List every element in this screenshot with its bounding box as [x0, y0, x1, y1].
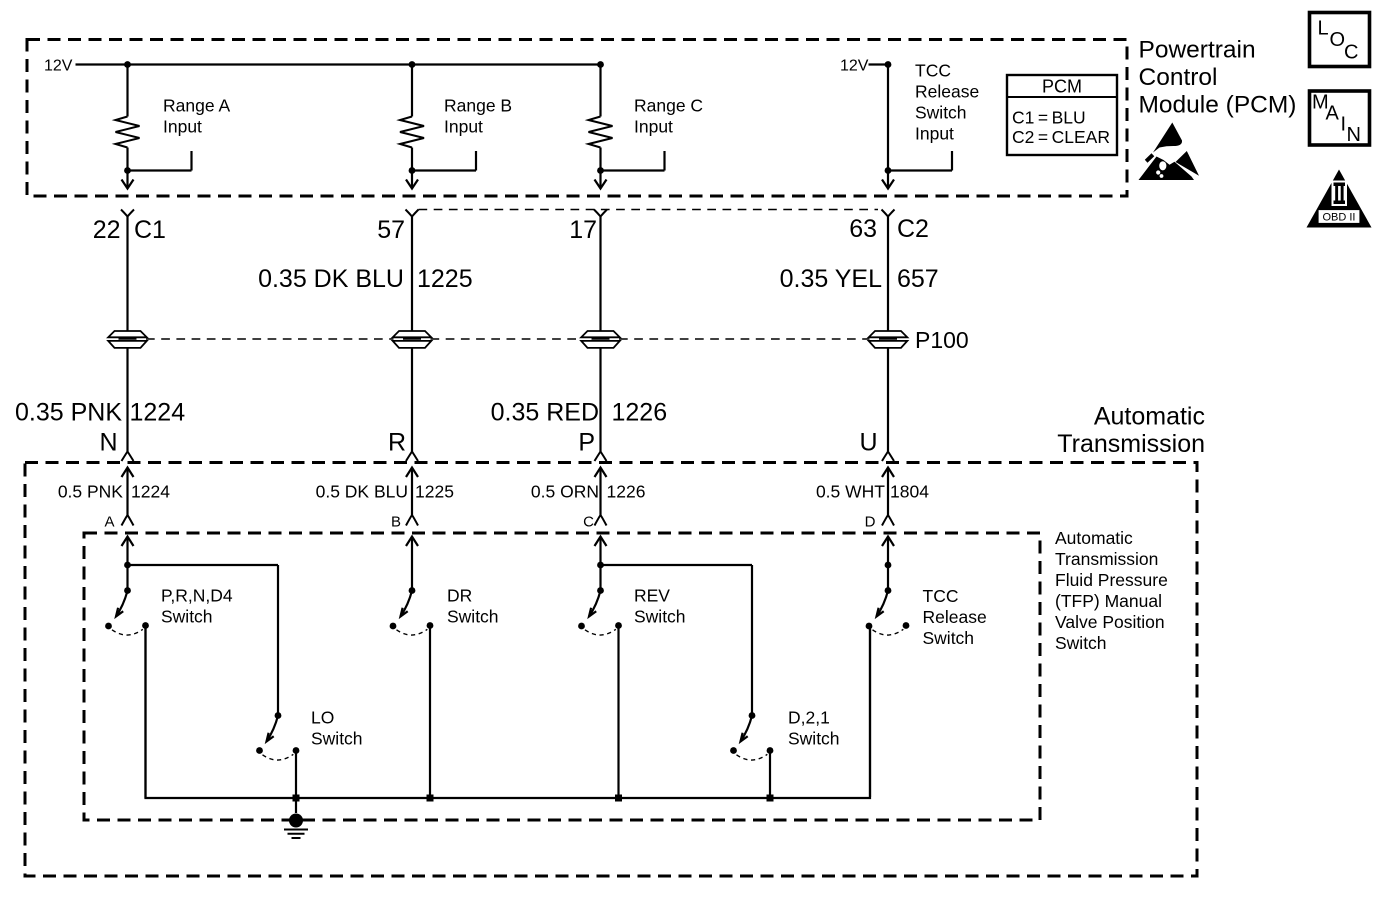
svg-text:A: A [1326, 103, 1340, 125]
svg-text:C: C [1344, 42, 1358, 64]
svg-text:1225: 1225 [417, 265, 473, 293]
svg-text:R: R [388, 429, 406, 457]
svg-text:0.35 RED: 0.35 RED [491, 399, 599, 427]
svg-text:TCC: TCC [915, 61, 951, 81]
svg-text:N: N [99, 429, 117, 457]
svg-text:0.5 PNK: 0.5 PNK [58, 482, 123, 502]
svg-text:TCC: TCC [923, 586, 959, 606]
svg-text:1226: 1226 [607, 482, 646, 502]
svg-text:12V: 12V [44, 58, 73, 75]
svg-text:P,R,N,D4: P,R,N,D4 [161, 586, 233, 606]
svg-text:0.5 WHT: 0.5 WHT [816, 482, 885, 502]
svg-text:Range A: Range A [163, 96, 230, 116]
svg-text:D: D [865, 514, 876, 531]
svg-text:N: N [1347, 124, 1361, 146]
svg-text:C2 = CLEAR: C2 = CLEAR [1012, 127, 1110, 147]
svg-text:Switch: Switch [161, 607, 213, 627]
svg-text:PCM: PCM [1042, 77, 1082, 97]
svg-text:0.35 YEL: 0.35 YEL [780, 265, 883, 293]
svg-text:C1: C1 [134, 216, 166, 244]
svg-text:P100: P100 [915, 327, 969, 353]
svg-text:57: 57 [377, 216, 405, 244]
svg-text:A: A [104, 514, 114, 531]
svg-text:12V: 12V [840, 58, 869, 75]
svg-text:Release: Release [915, 82, 979, 102]
svg-text:Module (PCM): Module (PCM) [1139, 92, 1297, 119]
svg-text:657: 657 [897, 265, 939, 293]
svg-text:22: 22 [93, 216, 121, 244]
svg-text:63: 63 [849, 215, 877, 243]
svg-text:O: O [1330, 29, 1346, 51]
svg-text:Control: Control [1139, 64, 1218, 91]
svg-text:0.35 PNK: 0.35 PNK [15, 399, 122, 427]
svg-text:REV: REV [634, 586, 670, 606]
svg-text:Input: Input [915, 124, 954, 144]
svg-text:17: 17 [569, 216, 597, 244]
svg-text:Powertrain: Powertrain [1139, 37, 1256, 64]
svg-text:I: I [1341, 114, 1347, 136]
svg-text:D,2,1: D,2,1 [788, 708, 830, 728]
svg-text:Switch: Switch [311, 729, 363, 749]
svg-text:Switch: Switch [634, 607, 686, 627]
svg-text:Transmission: Transmission [1055, 549, 1158, 569]
svg-text:Switch: Switch [788, 729, 840, 749]
svg-text:DR: DR [447, 586, 472, 606]
svg-text:LO: LO [311, 708, 334, 728]
svg-text:1224: 1224 [131, 482, 170, 502]
svg-text:Fluid Pressure: Fluid Pressure [1055, 570, 1168, 590]
svg-text:C2: C2 [897, 215, 929, 243]
svg-text:Range C: Range C [634, 96, 703, 116]
svg-text:C1 = BLU: C1 = BLU [1012, 108, 1086, 128]
svg-text:1225: 1225 [415, 482, 454, 502]
svg-text:OBD II: OBD II [1322, 212, 1355, 224]
svg-text:U: U [859, 429, 877, 457]
svg-text:1804: 1804 [890, 482, 929, 502]
svg-text:Input: Input [163, 117, 202, 137]
svg-text:Transmission: Transmission [1057, 430, 1205, 458]
svg-text:L: L [1318, 18, 1329, 40]
svg-text:Switch: Switch [447, 607, 499, 627]
svg-text:Switch: Switch [923, 628, 975, 648]
svg-text:C: C [583, 514, 594, 531]
svg-text:Input: Input [634, 117, 673, 137]
svg-text:Switch: Switch [915, 103, 967, 123]
svg-text:Range B: Range B [444, 96, 512, 116]
svg-text:Release: Release [923, 607, 987, 627]
svg-text:Valve Position: Valve Position [1055, 612, 1165, 632]
svg-text:B: B [391, 514, 401, 531]
svg-text:Input: Input [444, 117, 483, 137]
svg-text:0.35 DK BLU: 0.35 DK BLU [258, 265, 404, 293]
svg-text:1224: 1224 [130, 399, 186, 427]
svg-text:1226: 1226 [612, 399, 668, 427]
svg-text:0.5 DK BLU: 0.5 DK BLU [316, 482, 408, 502]
svg-text:P: P [578, 429, 595, 457]
svg-text:Automatic: Automatic [1094, 403, 1205, 431]
svg-text:Automatic: Automatic [1055, 528, 1133, 548]
svg-text:(TFP) Manual: (TFP) Manual [1055, 591, 1162, 611]
svg-text:0.5 ORN: 0.5 ORN [531, 482, 599, 502]
svg-text:Switch: Switch [1055, 633, 1107, 653]
